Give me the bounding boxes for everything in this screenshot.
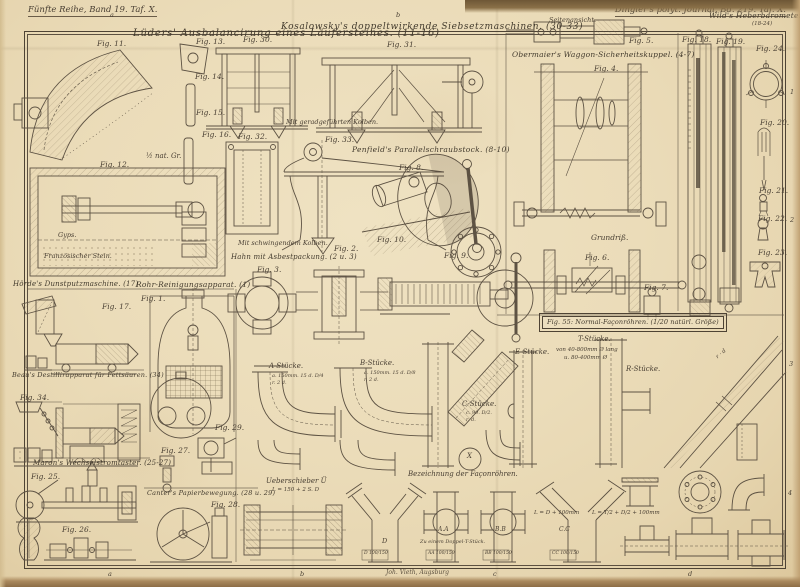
- fig18-drawing: [688, 30, 711, 316]
- fig20-drawing: [758, 128, 770, 190]
- ueberschieber-drawing: [240, 505, 348, 560]
- designation-circle: [459, 448, 481, 470]
- fig17-drawing: [22, 296, 138, 374]
- section-divider-rules: [28, 33, 784, 562]
- fig6-drawing: [504, 250, 686, 312]
- fig27-drawing: [160, 456, 174, 492]
- fig26-drawing: [18, 518, 136, 560]
- fig5-drawing: [506, 20, 647, 44]
- torn-paper-edge-top: [465, 0, 800, 13]
- fig4-drawing: [514, 64, 666, 226]
- b-stueck-drawing: [334, 368, 432, 476]
- fig24-drawing: [746, 60, 786, 108]
- plate-artwork: [0, 0, 800, 587]
- fig30-drawing: [206, 48, 308, 138]
- aa-piece-drawing: [424, 492, 468, 562]
- fig2-3-drawings: [228, 266, 388, 344]
- paper-edge-right: [792, 0, 800, 587]
- fig25-drawing: [16, 462, 138, 522]
- paper-edge-left: [0, 0, 6, 587]
- diagonal-pipes-drawing: [664, 336, 786, 468]
- fig22-drawing: [758, 219, 768, 240]
- d-piece-drawing: [346, 483, 426, 562]
- fig13-16-drawings: [180, 44, 208, 257]
- fig12-drawing: [30, 168, 225, 276]
- paper-edge-bottom: [0, 576, 800, 587]
- a-stueck-drawing: [252, 366, 341, 470]
- engraved-plate-scan: Fünfte Reihe, Band 19. Taf. X. Dingler's…: [0, 0, 800, 587]
- fig11-drawing: [14, 50, 154, 160]
- c-stueck-drawing: [422, 330, 518, 468]
- fig21-drawing: [759, 195, 768, 217]
- cc-piece-drawing: [536, 480, 626, 562]
- fig23-drawing: [750, 262, 780, 287]
- fig28-drawing: [150, 508, 232, 562]
- fig8-drawing: [362, 147, 487, 256]
- t-stueck-drawing: [486, 338, 650, 468]
- flange-detail-drawings: [620, 471, 788, 566]
- fig34-drawing: [14, 402, 140, 466]
- bb-piece-drawing: [481, 492, 525, 562]
- fig31-drawing: [316, 58, 483, 143]
- fig1-drawing: [150, 288, 234, 434]
- fig32-drawing: [226, 142, 278, 234]
- fig19-drawing: [718, 33, 741, 312]
